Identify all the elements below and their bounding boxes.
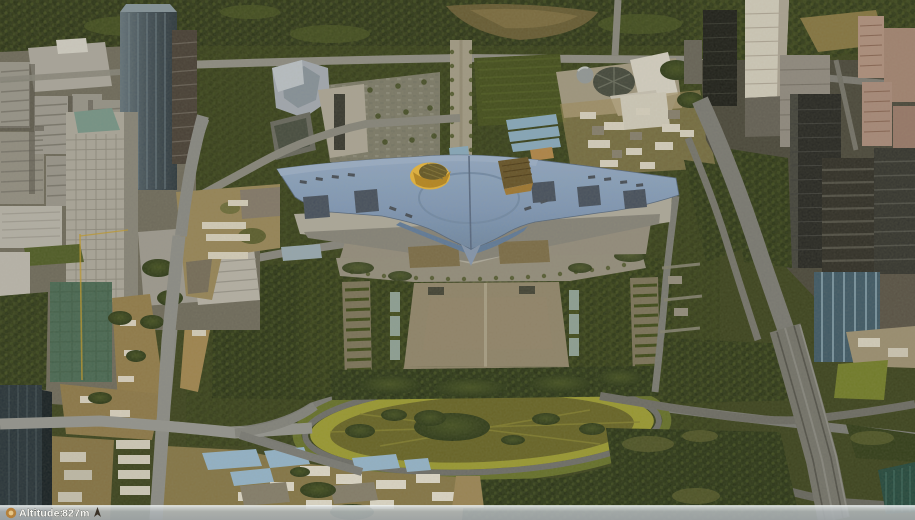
- svg-text:Altitude:: Altitude:: [19, 508, 63, 520]
- svg-text:827m: 827m: [62, 508, 90, 520]
